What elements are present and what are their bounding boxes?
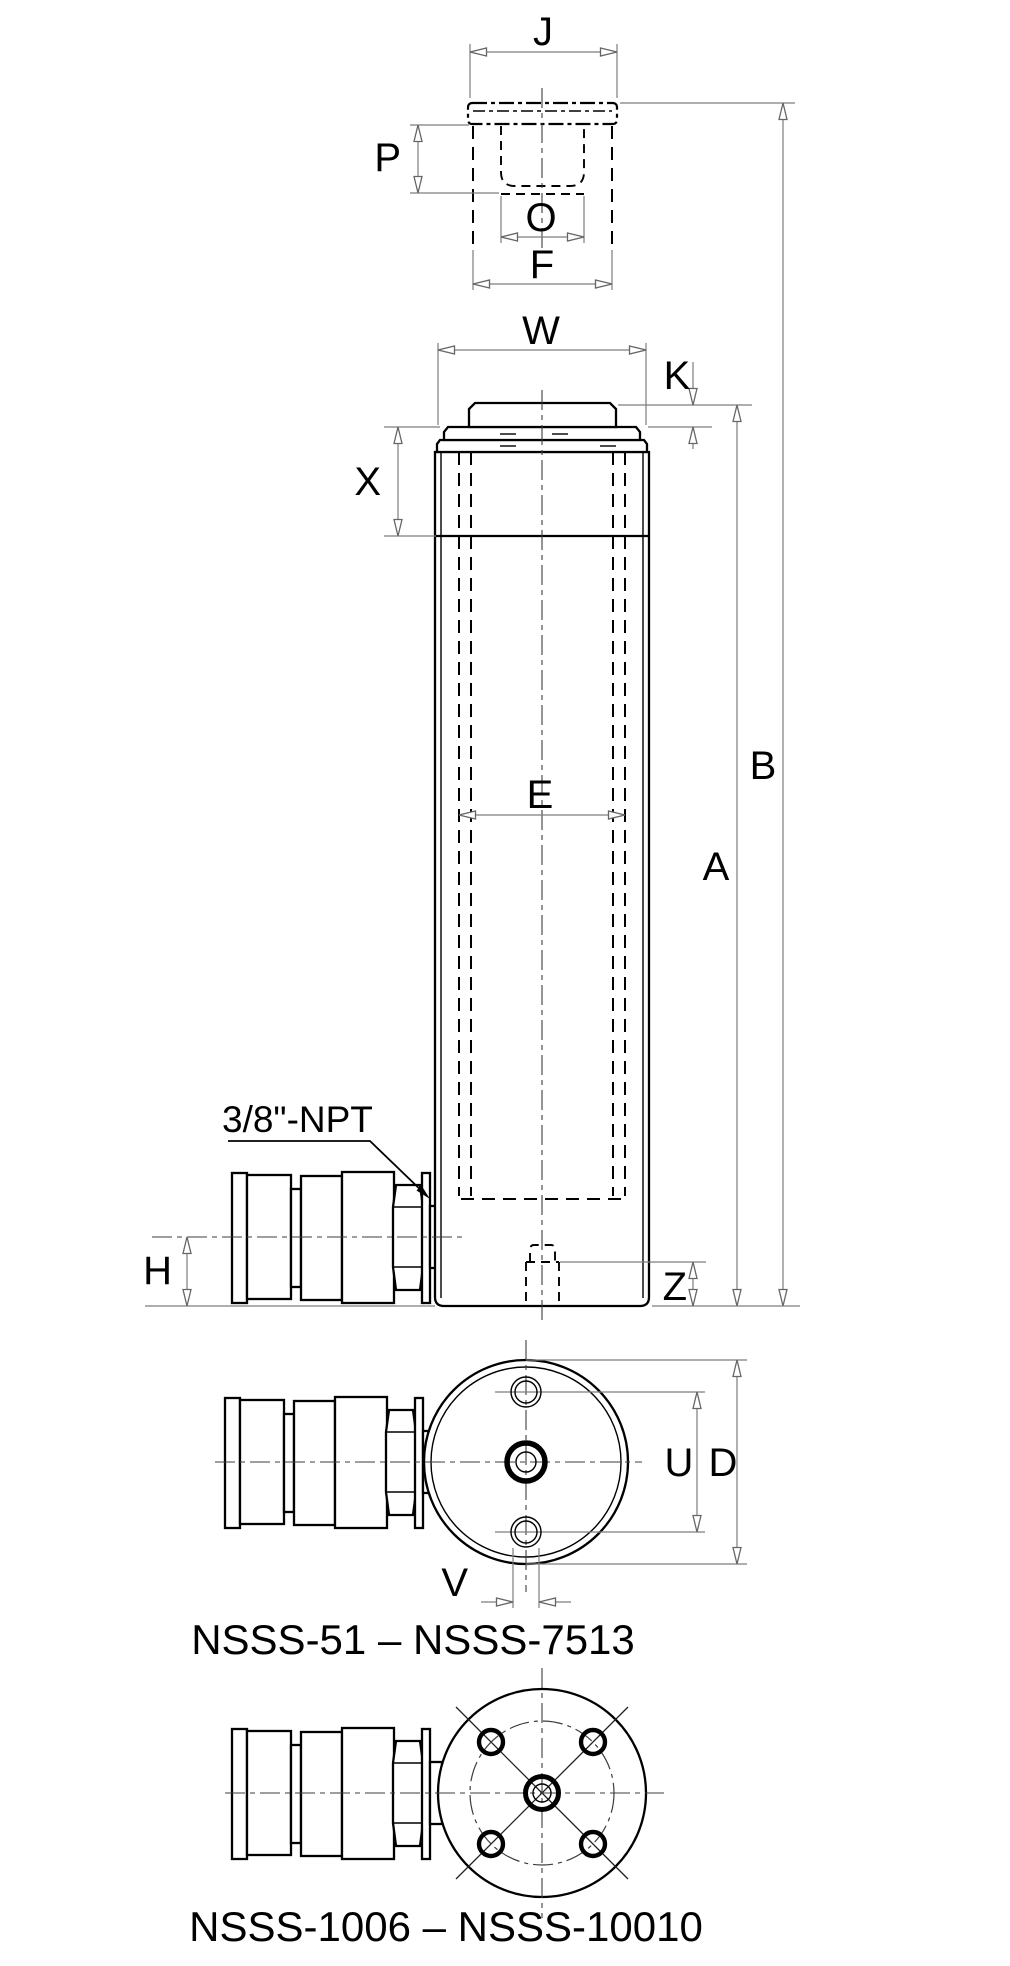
- dim-label-b: B: [750, 744, 777, 788]
- top-detail-view: J P O F: [374, 10, 617, 290]
- dim-label-x: X: [354, 460, 381, 504]
- dim-label-o: O: [525, 196, 556, 240]
- dim-label-d: D: [709, 1441, 738, 1485]
- dim-label-p: P: [374, 136, 401, 180]
- dim-label-u: U: [665, 1441, 694, 1485]
- dim-f: F: [473, 243, 612, 290]
- dim-label-f: F: [530, 243, 554, 287]
- dim-o: O: [501, 196, 584, 243]
- caption-view1: NSSS-51 – NSSS-7513: [191, 1616, 635, 1663]
- dim-label-j: J: [533, 10, 553, 54]
- dim-x: X: [354, 427, 440, 536]
- dim-h: H: [143, 1237, 187, 1306]
- dim-label-z: Z: [663, 1265, 687, 1309]
- dim-label-w: W: [522, 309, 560, 353]
- main-side-view: W K X E A B: [143, 103, 800, 1322]
- caption-view2: NSSS-1006 – NSSS-10010: [189, 1903, 703, 1950]
- dim-j: J: [470, 10, 617, 98]
- dim-p: P: [374, 125, 499, 193]
- hydraulic-cylinder-drawing: J P O F: [0, 0, 1010, 1966]
- dim-label-v: V: [441, 1561, 468, 1605]
- dim-label-a: A: [703, 845, 730, 889]
- dim-label-k: K: [664, 354, 691, 398]
- dim-a: A: [703, 405, 737, 1306]
- dim-u: U: [665, 1392, 697, 1532]
- technical-drawing-page: J P O F: [0, 0, 1010, 1966]
- bottom-view-nsss1006: NSSS-1006 – NSSS-10010: [189, 1668, 703, 1950]
- dim-d: D: [709, 1360, 738, 1564]
- port-label: 3/8"-NPT: [222, 1099, 373, 1140]
- bottom-view-nsss51: U D V NSSS-51 – NSSS-7513: [191, 1340, 747, 1663]
- dim-label-h: H: [143, 1249, 172, 1293]
- dim-label-e: E: [527, 773, 554, 817]
